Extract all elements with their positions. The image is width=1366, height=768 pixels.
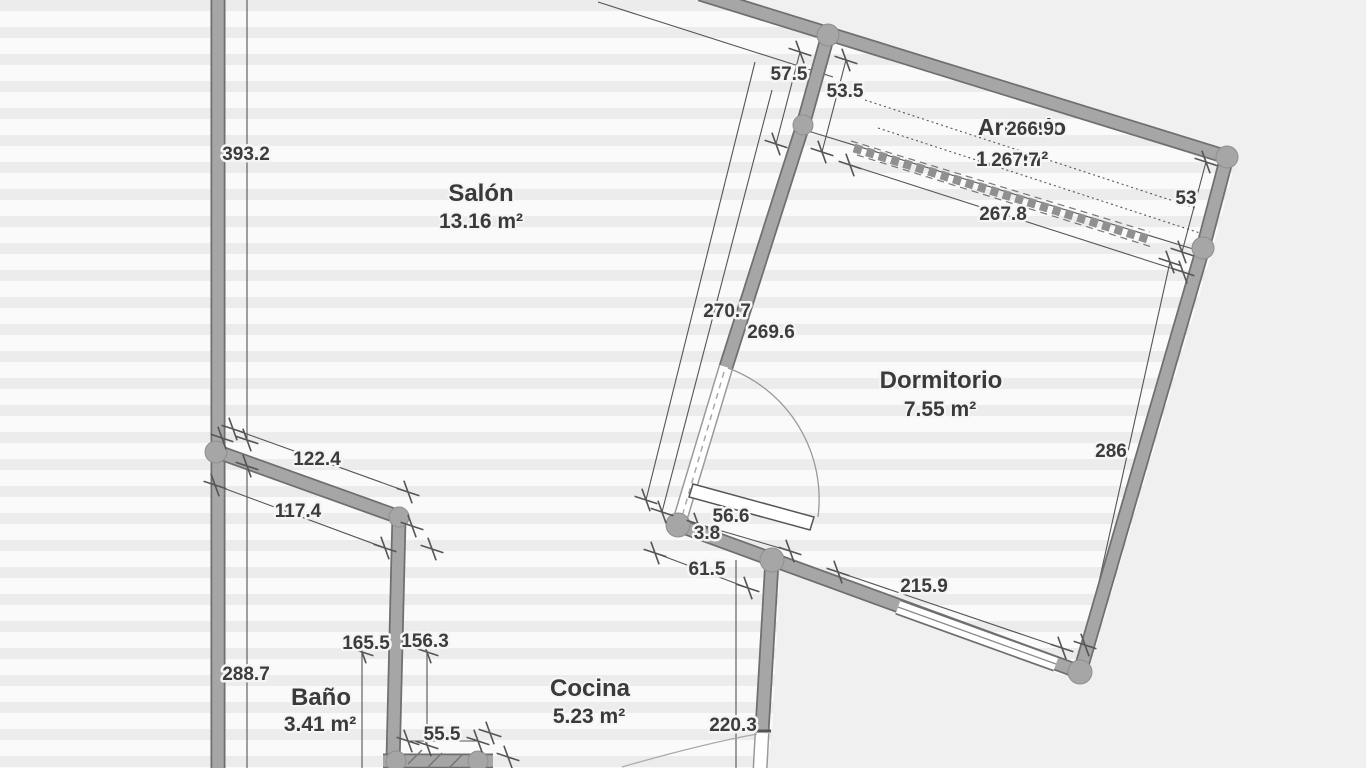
- dim-label-117-4: 117.4: [275, 501, 322, 522]
- wall-node-handle[interactable]: [1216, 146, 1238, 168]
- dim-label-53: 53: [1175, 188, 1196, 209]
- dim-label-266-9: 266.9: [1006, 119, 1054, 140]
- dim-label-53-5: 53.5: [827, 81, 864, 102]
- dim-label-267-7: 267.7: [991, 150, 1039, 171]
- dim-label-61-5: 61.5: [689, 559, 726, 580]
- room-area-dormitorio: 7.55 m²: [904, 398, 976, 421]
- room-area-cocina: 5.23 m²: [553, 705, 625, 728]
- wall-node-handle[interactable]: [760, 548, 784, 572]
- dim-tick: [635, 496, 658, 503]
- wall-node-handle[interactable]: [793, 115, 813, 135]
- dim-tick: [497, 753, 520, 760]
- dim-label-267-8: 267.8: [979, 204, 1027, 225]
- room-label-salon: Salón: [448, 180, 513, 207]
- dim-tick: [789, 48, 812, 55]
- room-label-cocina: Cocina: [550, 675, 631, 702]
- wall-node-handle[interactable]: [1068, 660, 1092, 684]
- door-swing-arc: [622, 734, 757, 767]
- dim-label-220-3: 220.3: [709, 715, 757, 736]
- wall-node-handle[interactable]: [386, 751, 406, 768]
- wall-node-handle[interactable]: [468, 751, 488, 768]
- wall[interactable]: [393, 517, 399, 762]
- room-label-bano: Baño: [291, 684, 351, 711]
- room-label-dormitorio: Dormitorio: [880, 367, 1003, 394]
- dim-tick: [1159, 258, 1182, 265]
- dim-label-269-6: 269.6: [747, 322, 795, 343]
- dim-label-215-9: 215.9: [900, 576, 948, 597]
- dimension-line: [822, 60, 846, 152]
- dim-label-165-5: 165.5: [342, 633, 390, 654]
- door-opening[interactable]: [760, 733, 762, 768]
- dim-label-393-2: 393.2: [222, 144, 270, 165]
- floor-plan-canvas: Salón 13.16 m² Dormitorio 7.55 m² Baño 3…: [0, 0, 1366, 768]
- wall-node-handle[interactable]: [1192, 237, 1214, 259]
- dim-tick: [479, 729, 502, 736]
- room-area-bano: 3.41 m²: [284, 713, 356, 736]
- wall-node-handle[interactable]: [666, 513, 690, 537]
- dim-label-57-5: 57.5: [771, 64, 808, 85]
- dim-tick: [1171, 248, 1194, 255]
- dim-label-55-5: 55.5: [424, 724, 461, 745]
- dim-tick: [1051, 644, 1074, 651]
- dim-tick: [421, 545, 444, 552]
- dim-label-3-8: 3.8: [694, 523, 720, 544]
- dim-tick: [644, 549, 667, 556]
- dim-label-270-7: 270.7: [703, 301, 751, 322]
- dim-tick: [835, 56, 858, 63]
- dim-label-122-4: 122.4: [293, 449, 341, 470]
- dim-tick: [651, 508, 674, 515]
- dim-tick: [811, 148, 834, 155]
- floor-plan-page: { "plan": { "rooms": [ {"name": "Salón",…: [0, 0, 1366, 768]
- dimension-line-dotted: [878, 128, 1200, 233]
- wall-node-handle[interactable]: [817, 24, 839, 46]
- dim-label-286: 286: [1095, 441, 1127, 462]
- dim-tick: [765, 140, 788, 147]
- dim-tick: [397, 488, 420, 495]
- door-swing-arc: [728, 368, 819, 517]
- dim-tick: [737, 584, 760, 591]
- dim-label-288-7: 288.7: [222, 664, 270, 685]
- dim-tick: [839, 161, 862, 168]
- room-area-salon: 13.16 m²: [439, 210, 523, 233]
- dim-label-156-3: 156.3: [401, 631, 449, 652]
